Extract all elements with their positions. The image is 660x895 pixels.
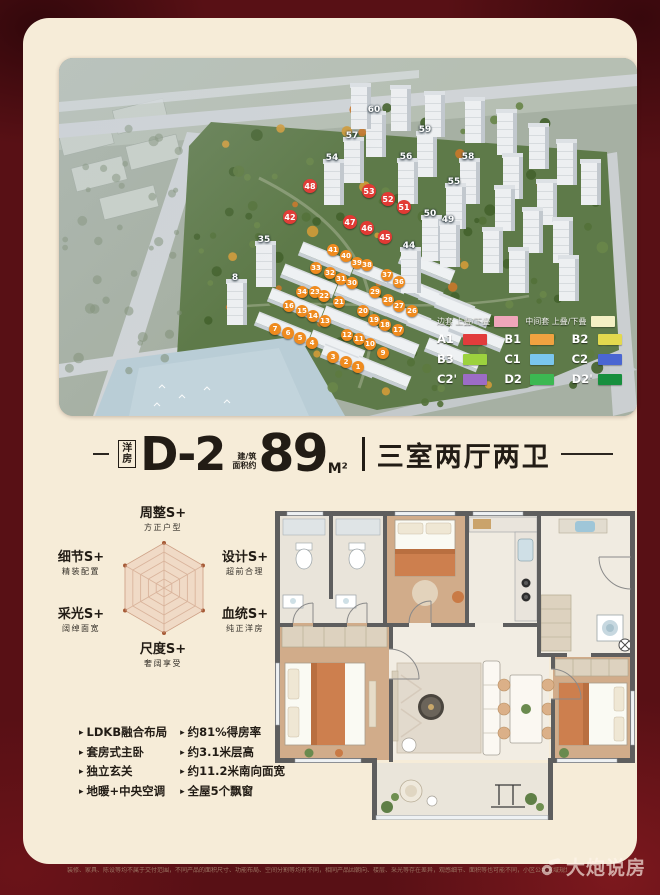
tower-number-label: 55 (448, 177, 461, 187)
legend-color-swatch (463, 334, 487, 345)
radar-axis-label: 采光S+ 阔绰面宽 (41, 603, 121, 634)
title-left-dash (93, 453, 109, 455)
feature-item: ▸套房式主卧 (79, 744, 167, 764)
legend-grid: A1B1B2B3C1C2C2'D2D2' (437, 332, 633, 386)
feature-text: 独立玄关 (87, 764, 133, 778)
tower-number-label: 8 (232, 273, 238, 283)
orange-building-marker: 2 (340, 356, 352, 368)
legend-header-group: 边套 上叠/下叠 (437, 316, 518, 327)
area-unit: M² (328, 461, 348, 477)
title-divider (362, 437, 365, 471)
living-room (392, 661, 500, 755)
feature-text: 约3.1米层高 (188, 745, 254, 759)
orange-building-marker: 26 (406, 305, 418, 317)
cannon-icon (540, 858, 562, 876)
tower-number-label: 57 (346, 131, 359, 141)
red-building-marker: 52 (381, 192, 395, 206)
bullet-triangle-icon: ▸ (180, 728, 185, 738)
legend-header-group: 中间套 上叠/下叠 (525, 316, 614, 327)
orange-building-marker: 3 (327, 351, 339, 363)
tower-number-label: 56 (400, 152, 413, 162)
tower-number-label: 54 (326, 153, 339, 163)
orange-building-marker: 13 (319, 315, 331, 327)
watermark-text: 大炮说房 (566, 853, 646, 880)
floor-plan-block (259, 495, 649, 840)
legend-entry: C2' (437, 372, 498, 386)
feature-text: 套房式主卧 (87, 745, 145, 759)
legend-entry: D2' (572, 372, 633, 386)
legend-code: B2 (572, 332, 594, 346)
feature-item: ▸约3.1米层高 (180, 744, 285, 764)
orange-building-marker: 16 (283, 300, 295, 312)
red-building-marker: 51 (397, 200, 411, 214)
orange-building-marker: 4 (306, 337, 318, 349)
radar-axis-label: 尺度S+ 奢阔享受 (123, 638, 203, 669)
red-building-marker: 45 (378, 230, 392, 244)
bullet-triangle-icon: ▸ (180, 767, 185, 777)
orange-building-marker: 40 (340, 250, 352, 262)
feature-text: 约11.2米南向面宽 (188, 764, 285, 778)
radar-axis-label: 周整S+ 方正户型 (123, 502, 203, 533)
aerial-rendering: 6057595456585535850494448535251474645424… (59, 58, 637, 416)
red-building-marker: 42 (283, 210, 297, 224)
feature-text: 约81%得房率 (188, 725, 262, 739)
feature-item: ▸全屋5个飘窗 (180, 783, 285, 803)
legend-entry: C2 (572, 352, 633, 366)
legend-entry: D2 (504, 372, 565, 386)
legend-color-swatch (591, 316, 615, 327)
area-prefix-line1: 建/筑 (232, 452, 256, 462)
disclaimer-text: 装修、家具、陈设等均不属于交付范围，不同产品的面积尺寸、功能布局、空间分割等均有… (67, 867, 567, 875)
legend-color-swatch (463, 354, 487, 365)
legend-entry: B1 (504, 332, 565, 346)
orange-building-marker: 1 (352, 361, 364, 373)
tower-number-label: 58 (462, 152, 475, 162)
dining-area (498, 675, 554, 743)
orange-building-marker: 14 (307, 310, 319, 322)
feature-text: 地暖+中央空调 (87, 784, 166, 798)
orange-building-marker: 36 (393, 276, 405, 288)
legend-code: C2' (437, 372, 459, 386)
legend-color-swatch (598, 354, 622, 365)
legend-entry: A1 (437, 332, 498, 346)
floor-plan (259, 495, 649, 840)
bullet-triangle-icon: ▸ (180, 748, 185, 758)
orange-building-marker: 7 (269, 323, 281, 335)
orange-building-marker: 10 (364, 338, 376, 350)
area-prefix-line2: 面积约 (232, 461, 256, 471)
watermark-logo: 大炮说房 (540, 853, 646, 880)
legend-entry: B2 (572, 332, 633, 346)
legend-color-swatch (598, 374, 622, 385)
bullet-triangle-icon: ▸ (79, 767, 84, 777)
orange-building-marker: 30 (346, 277, 358, 289)
red-building-marker: 46 (360, 221, 374, 235)
orange-building-marker: 37 (381, 269, 393, 281)
area-prefix: 建/筑 面积约 (232, 452, 256, 471)
red-building-marker: 47 (343, 215, 357, 229)
bullet-triangle-icon: ▸ (79, 748, 84, 758)
tag-char-top: 洋 (122, 443, 132, 454)
feature-text: 全屋5个飘窗 (188, 784, 254, 798)
radar-block: 周整S+ 方正户型 设计S+ 超前合理 血统S+ 纯正洋房 尺度S+ 奢阔享受 … (61, 502, 266, 677)
orange-building-marker: 5 (294, 332, 306, 344)
feature-item: ▸LDKB融合布局 (79, 724, 167, 744)
legend-header-text: 边套 上叠/下叠 (437, 316, 490, 327)
tag-char-bottom: 房 (122, 454, 132, 465)
orange-building-marker: 27 (393, 300, 405, 312)
legend-color-swatch (494, 316, 518, 327)
feature-column-1: ▸LDKB融合布局 ▸套房式主卧 ▸独立玄关 ▸地暖+中央空调 (79, 724, 167, 802)
legend-color-swatch (598, 334, 622, 345)
legend-header-text: 中间套 上叠/下叠 (525, 316, 586, 327)
legend-color-swatch (530, 354, 554, 365)
red-building-marker: 48 (303, 179, 317, 193)
feature-text: LDKB融合布局 (87, 725, 168, 739)
orange-building-marker: 6 (282, 327, 294, 339)
legend-color-swatch (530, 374, 554, 385)
feature-item: ▸独立玄关 (79, 763, 167, 783)
tower-number-label: 35 (258, 235, 271, 245)
tower-number-label: 44 (403, 241, 416, 251)
tower-number-label: 49 (442, 215, 455, 225)
legend-code: C2 (572, 352, 594, 366)
radar-axis-label: 细节S+ 精装配置 (41, 546, 121, 577)
area-value: 89 (258, 431, 326, 477)
room-layout: 三室两厅两卫 (377, 435, 551, 474)
orange-building-marker: 21 (333, 296, 345, 308)
orange-building-marker: 34 (296, 286, 308, 298)
legend-code: B1 (504, 332, 526, 346)
orange-building-marker: 38 (361, 259, 373, 271)
tower-number-label: 59 (419, 125, 432, 135)
feature-list: ▸LDKB融合布局 ▸套房式主卧 ▸独立玄关 ▸地暖+中央空调 ▸约81%得房率… (79, 724, 285, 802)
unit-title: 洋 房 D-2 建/筑 面积约 89 M² 三室两厅两卫 (23, 424, 660, 484)
title-right-dash (561, 453, 613, 455)
orange-building-marker: 18 (379, 319, 391, 331)
orange-building-marker: 22 (318, 290, 330, 302)
building-type-legend: 边套 上叠/下叠中间套 上叠/下叠A1B1B2B3C1C2C2'D2D2' (437, 316, 633, 386)
bullet-triangle-icon: ▸ (180, 787, 185, 797)
tower-number-label: 50 (424, 209, 437, 219)
feature-item: ▸地暖+中央空调 (79, 783, 167, 803)
feature-item: ▸约81%得房率 (180, 724, 285, 744)
feature-item: ▸约11.2米南向面宽 (180, 763, 285, 783)
bullet-triangle-icon: ▸ (79, 728, 84, 738)
legend-code: B3 (437, 352, 459, 366)
legend-code: C1 (504, 352, 526, 366)
red-building-marker: 53 (362, 184, 376, 198)
legend-header: 边套 上叠/下叠中间套 上叠/下叠 (437, 316, 633, 327)
feature-column-2: ▸约81%得房率 ▸约3.1米层高 ▸约11.2米南向面宽 ▸全屋5个飘窗 (180, 724, 285, 802)
orange-building-marker: 20 (357, 305, 369, 317)
legend-code: A1 (437, 332, 459, 346)
bullet-triangle-icon: ▸ (79, 787, 84, 797)
unit-model: D-2 (140, 431, 224, 477)
poster-panel: 6057595456585535850494448535251474645424… (23, 18, 637, 864)
tower-number-label: 60 (368, 105, 381, 115)
orange-building-marker: 33 (310, 262, 322, 274)
legend-code: D2' (572, 372, 594, 386)
unit-type-tag: 洋 房 (118, 440, 136, 468)
orange-building-marker: 41 (327, 244, 339, 256)
legend-color-swatch (463, 374, 487, 385)
legend-entry: C1 (504, 352, 565, 366)
legend-code: D2 (504, 372, 526, 386)
orange-building-marker: 12 (341, 329, 353, 341)
orange-building-marker: 9 (377, 347, 389, 359)
legend-entry: B3 (437, 352, 498, 366)
orange-building-marker: 17 (392, 324, 404, 336)
orange-building-marker: 29 (369, 286, 381, 298)
legend-color-swatch (530, 334, 554, 345)
